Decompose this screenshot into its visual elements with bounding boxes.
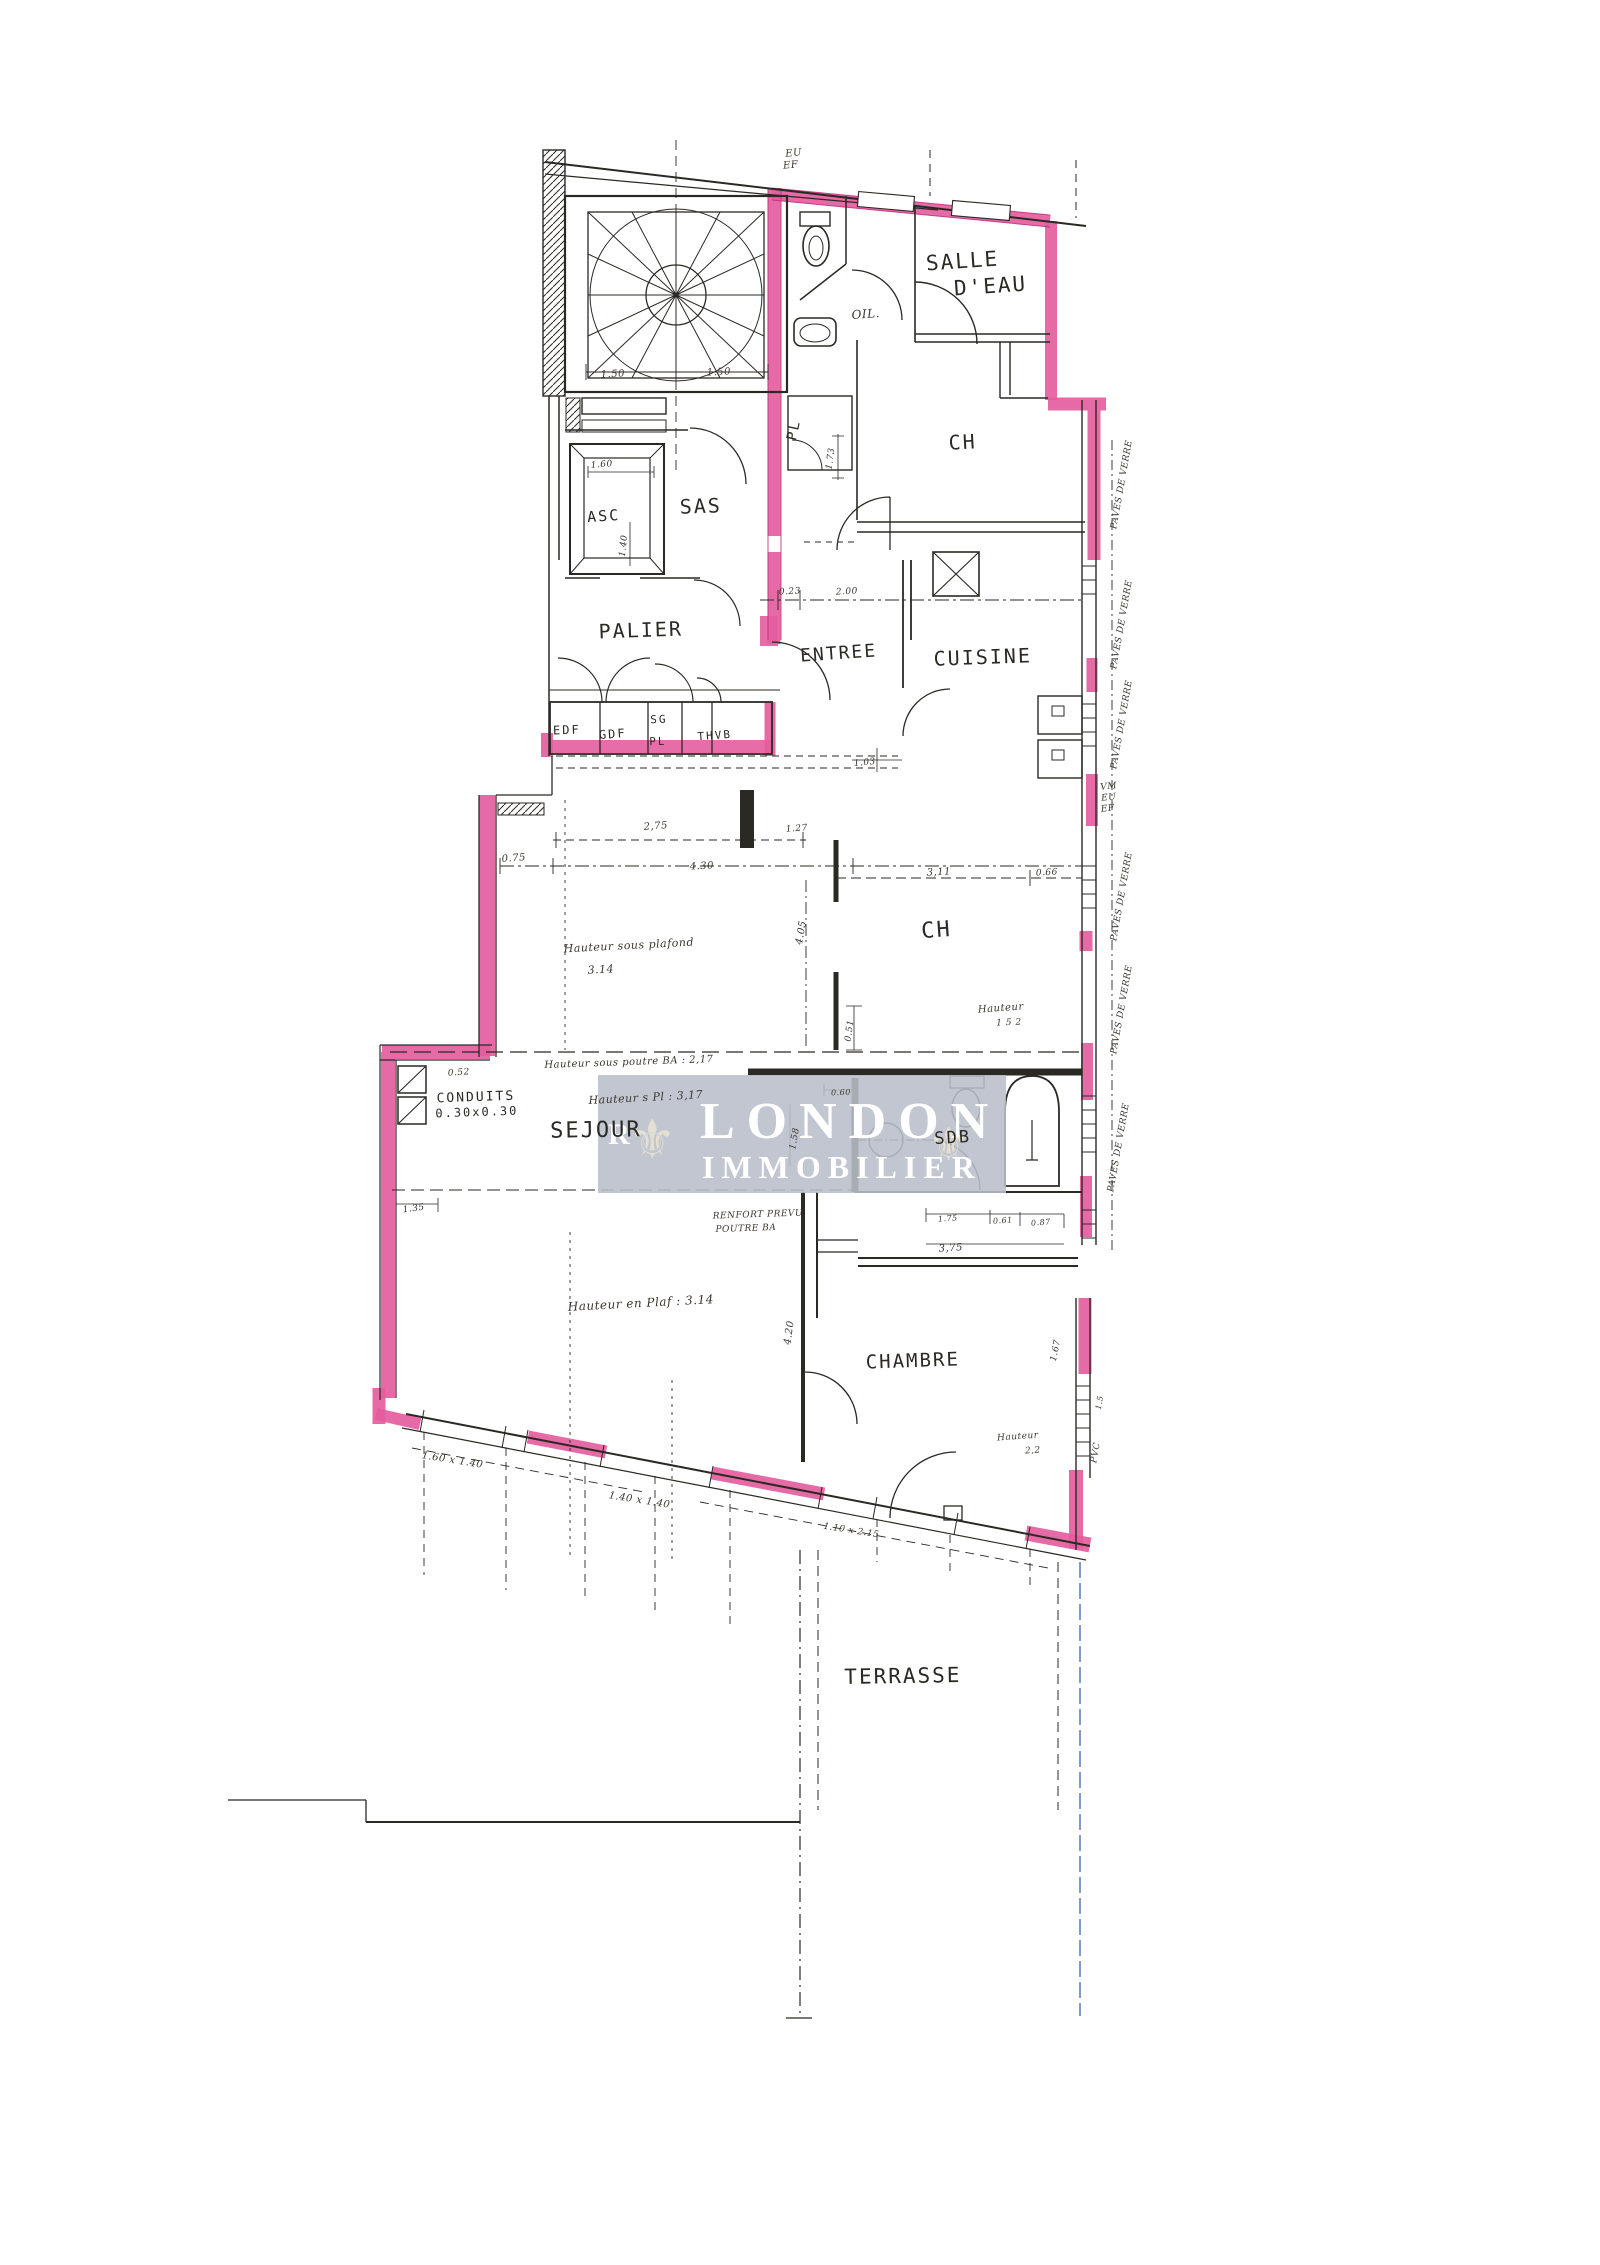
note-renfort-2: POUTRE BA [714,1223,776,1235]
dim-051: 0.51 [844,1019,857,1042]
dim-405: 4.05 [794,920,809,947]
dim-375: 3,75 [938,1242,963,1255]
lintel [498,803,544,815]
dim-420: 4.20 [782,1320,796,1347]
dim-160: 1.60 [590,459,613,471]
top-rooms-walls [788,192,1085,550]
note-paves-1: PAVES DE VERRE [1109,439,1135,531]
floor-plan-svg: R ⚜ LONDON IMMOBILIER ⚜ EUEFSALLED'EAUOI… [0,0,1600,2265]
hatched-wall [543,150,565,396]
dim-window-2: 1.40 x 1.40 [608,1490,671,1511]
room-salle-deau-line2: D'EAU [953,271,1028,300]
closet-thvb: THVB [697,728,732,743]
dim-066: 0.66 [1036,867,1059,878]
terrasse-door-arc [890,1452,956,1518]
dim-430: 4.30 [688,860,714,872]
note-hauteur-plafond-1: Hauteur sous plafond [562,936,694,956]
cuisine-door-arc [903,689,950,736]
dim-167: 1.67 [1049,1339,1063,1363]
pvc-window-rungs [1076,1386,1090,1456]
room-asc: ASC [587,506,621,526]
room-sas: SAS [679,493,722,518]
sink-icon [794,318,836,346]
room-cuisine: CUISINE [933,643,1032,670]
bathtub-icon [1005,1076,1059,1186]
dim-135: 1.35 [402,1203,425,1216]
dim-window-1: 1.60 x 1.40 [421,1450,484,1471]
lower-sejour-chambre [402,1192,1090,1625]
scanned-floor-plan-page: R ⚜ LONDON IMMOBILIER ⚜ EUEFSALLED'EAUOI… [0,0,1600,2265]
spiral-staircase [543,140,1086,470]
room-entree: ENTREE [799,640,877,666]
note-paves-3: PAVES DE VERRE [1109,679,1135,771]
closet-door-arcs [558,658,721,702]
note-hauteur-chambre-2: 2,2 [1024,1445,1041,1456]
room-terrasse: TERRASSE [844,1663,962,1689]
note-vm: VM [1100,781,1118,793]
note-ef-top: EF [782,159,800,172]
dim-023: 0.23 [779,586,802,597]
chambre-door-arc [805,1372,857,1424]
dim-052: 0.52 [448,1067,471,1079]
dim-103: 1.03 [853,757,876,769]
dim-175: 1.75 [938,1213,958,1223]
room-salle-deau-line1: SALLE [925,246,1000,275]
note-oil: OIL. [851,306,880,322]
label-conduits-2: 0.30x0.30 [435,1104,518,1121]
note-hauteur-plaf: Hauteur en Plaf : 3.14 [566,1292,714,1314]
dim-150-a: 1.50 [600,368,625,380]
note-paves-6: PAVES DE VERRE [1106,1102,1132,1194]
note-ef-2: EF [1099,803,1115,815]
room-ch-top: CH [948,429,977,454]
terrasse-lines [228,1550,1080,2018]
note-eu-2: EU [1100,792,1117,804]
closet-edf: EDF [553,723,581,738]
dim-200: 2.00 [835,586,859,597]
kitchen-counter-icon [1038,696,1082,778]
note-hauteur-chambre-1: Hauteur [996,1431,1039,1444]
label-pl-vertical: PL [784,418,804,442]
dim-075: 0.75 [501,852,526,865]
note-poutre-ba: Hauteur sous poutre BA : 2,17 [543,1054,714,1071]
room-sdb: SDB [934,1127,972,1149]
room-palier: PALIER [598,617,683,644]
note-renfort-1: RENFORT PREVU [712,1208,804,1221]
dim-window-3: 1.10 x 2.15 [823,1522,880,1541]
note-pvc: PVC [1089,1441,1103,1464]
note-paves-2: PAVES DE VERRE [1109,579,1135,671]
toilet-top-icon [800,212,830,266]
dim-311: 3,11 [926,866,951,878]
dim-15: 1.5 [1094,1395,1105,1411]
dim-061: 0.61 [993,1215,1013,1225]
room-ch-mid: CH [920,917,952,944]
note-paves-5: PAVES DE VERRE [1109,964,1135,1056]
note-hauteur-plafond-2: 3.14 [587,962,614,976]
ch-top-door-arc [837,497,890,550]
dim-173: 1.73 [825,447,838,470]
sas-palier-door-arc [694,580,740,626]
entree-cuisine [556,552,1082,848]
note-hauteur-152-1: Hauteur [977,1001,1025,1015]
closet-pl: PL [649,735,667,749]
dim-150-b: 1.50 [706,366,731,378]
note-hauteur-152-2: 1 5 2 [996,1018,1022,1029]
room-sejour: SEJOUR [550,1117,642,1144]
dim-060: 0.60 [831,1088,851,1098]
dim-275: 2,75 [642,820,668,833]
closet-gdf: GDF [598,726,627,742]
wall-stub [740,790,754,848]
note-eu-top: EU [784,147,803,160]
closet-sg: SG [650,713,668,727]
dim-127: 1.27 [786,823,809,835]
sas-door-arc [690,428,746,484]
dim-140: 1.40 [618,534,630,557]
room-chambre: CHAMBRE [865,1348,960,1373]
note-paves-4: PAVES DE VERRE [1109,851,1135,943]
dim-087: 0.87 [1031,1217,1052,1227]
